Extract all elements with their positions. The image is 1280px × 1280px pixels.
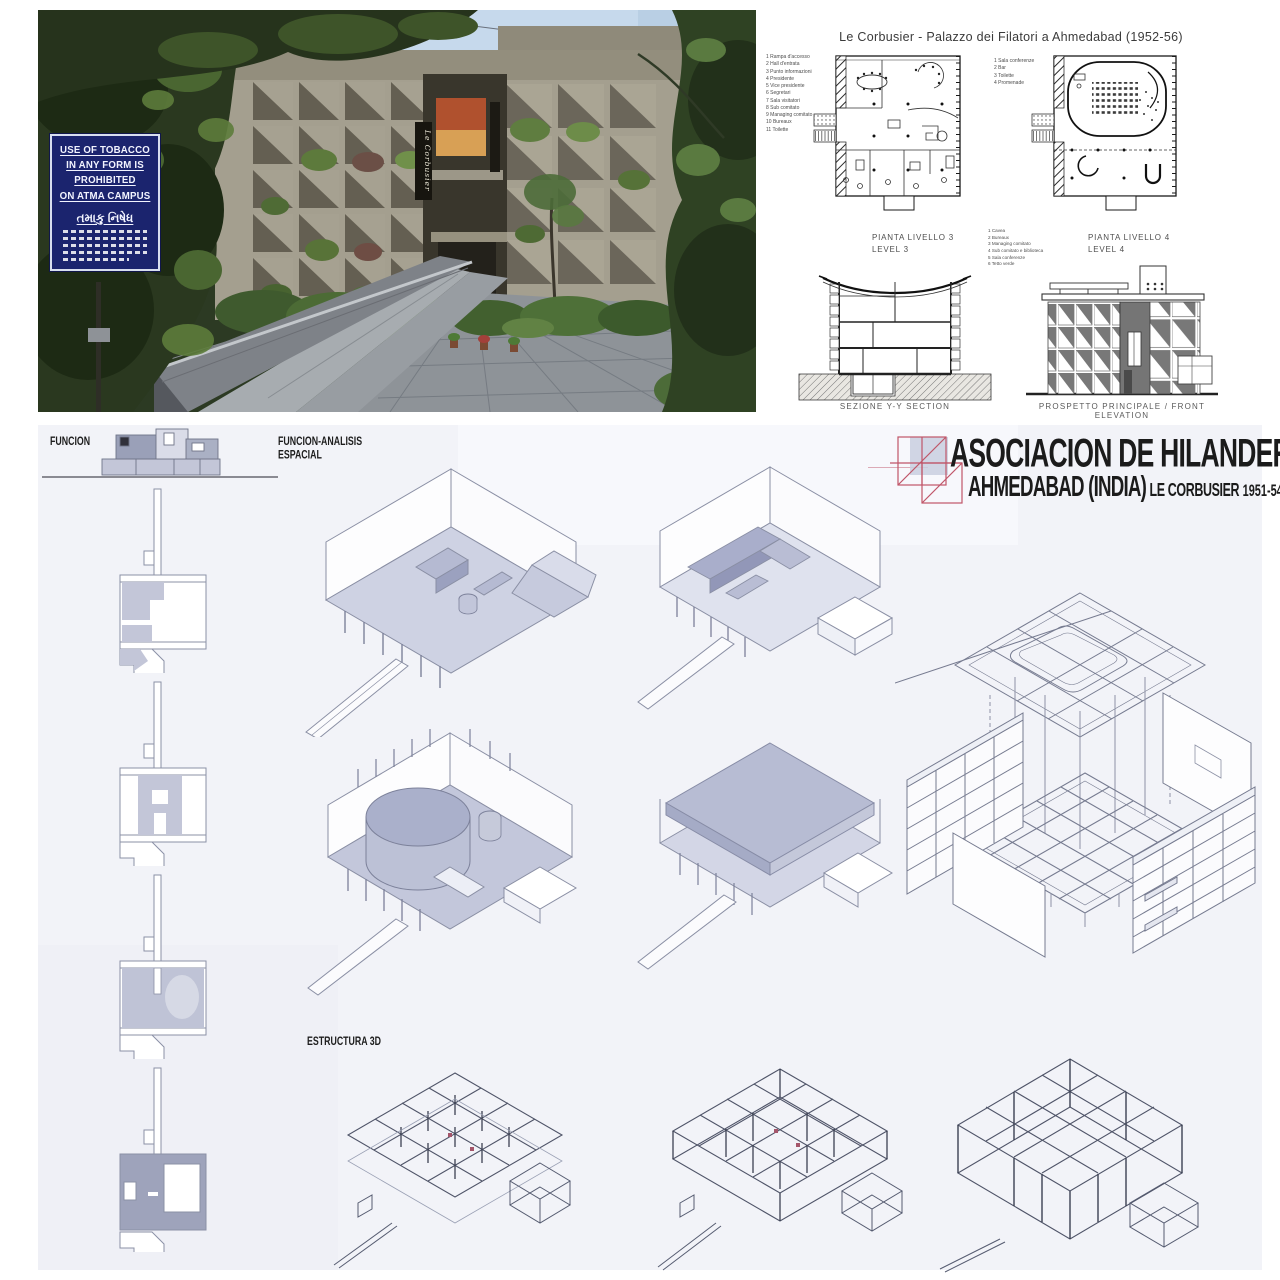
legend-item: 5 Vice presidente — [766, 83, 812, 90]
sign-small-text-row — [63, 230, 147, 233]
legend-item: 10 Bureaux — [766, 119, 812, 126]
section-caption: SEZIONE Y-Y SECTION — [820, 402, 970, 411]
sign-line: ON ATMA CAMPUS — [59, 189, 151, 204]
plan4-label: PIANTA LIVELLO 4 LEVEL 4 — [1088, 232, 1170, 256]
collage-page: USE OF TOBACCO IN ANY FORM IS PROHIBITED… — [0, 0, 1280, 1280]
sign-line: USE OF TOBACCO — [59, 143, 151, 158]
axon-estructura-1 — [330, 1055, 580, 1270]
plan-level4-drawing — [1028, 50, 1200, 222]
axon-funcion-espacial-1 — [296, 447, 616, 737]
legend-item: 8 Sub comitato — [766, 105, 812, 112]
analysis-board: FUNCION FUNCION-ANALISIS ESPACIAL ESTRUC… — [38, 425, 1262, 1270]
axon-estructura-3 — [930, 1043, 1210, 1273]
legend-item: 11 Toilette — [766, 127, 812, 134]
elevation-drawing — [1022, 258, 1222, 408]
board-title-architect: LE CORBUSIER — [1150, 480, 1240, 500]
legend-item: 1 Cavea — [988, 228, 1043, 235]
axon-funcion-espacial-2 — [630, 447, 910, 717]
board-title-line2: AHMEDABAD (INDIA) LE CORBUSIER 1951-54 — [968, 471, 1280, 504]
drawing-sheet: Le Corbusier - Palazzo dei Filatori a Ah… — [760, 10, 1262, 415]
plan-diagram-1 — [68, 485, 258, 673]
axon-estructura-2 — [650, 1055, 910, 1275]
legend-item: 2 Bureaux — [988, 235, 1043, 242]
le-corbusier-banner: Le Corbusier — [415, 122, 432, 200]
plan3-label-it: PIANTA LIVELLO 3 — [872, 232, 954, 244]
sign-small-text-row — [63, 244, 147, 247]
axon-funcion-espacial-3 — [300, 697, 600, 997]
exploded-axon — [895, 565, 1262, 985]
funcion-section-diagram — [40, 425, 280, 483]
plan-level3-drawing — [812, 50, 982, 222]
sign-line: IN ANY FORM IS — [59, 158, 151, 173]
board-title-city: AHMEDABAD (INDIA) — [968, 471, 1146, 503]
legend-item: 3 Managing comitato — [988, 241, 1043, 248]
legend-item: 6 Segretari — [766, 90, 812, 97]
plan-diagram-4 — [68, 1064, 258, 1252]
elevation-caption: PROSPETTO PRINCIPALE / FRONT ELEVATION — [1022, 402, 1222, 420]
legend-item: 9 Managing comitato — [766, 112, 812, 119]
campus-photo: USE OF TOBACCO IN ANY FORM IS PROHIBITED… — [38, 10, 756, 412]
legend-item: 3 Punto informazioni — [766, 69, 812, 76]
section-drawing — [795, 252, 995, 407]
legend-item: 2 Hall d'entrata — [766, 61, 812, 68]
board-title-years: 1951-54 — [1243, 480, 1280, 499]
sign-small-text-row — [63, 258, 129, 261]
legend-item: 1 Rampa d'accesso — [766, 54, 812, 61]
axon-funcion-espacial-4 — [630, 693, 910, 993]
legend-item: 4 Sub comitato e biblioteca — [988, 248, 1043, 255]
sign-small-text-row — [63, 237, 147, 240]
plan4-label-it: PIANTA LIVELLO 4 — [1088, 232, 1170, 244]
legend-level3: 1 Rampa d'accesso 2 Hall d'entrata 3 Pun… — [766, 54, 812, 134]
plan-diagram-3 — [68, 871, 258, 1059]
tobacco-prohibition-sign: USE OF TOBACCO IN ANY FORM IS PROHIBITED… — [50, 134, 160, 271]
sign-small-text-row — [63, 251, 147, 254]
plan-diagram-2 — [68, 678, 258, 866]
sign-line: PROHIBITED — [59, 173, 151, 188]
legend-item: 4 Presidente — [766, 76, 812, 83]
label-estructura: ESTRUCTURA 3D — [307, 1035, 381, 1048]
legend-item: 7 Sala visitatori — [766, 98, 812, 105]
sheet-title: Le Corbusier - Palazzo dei Filatori a Ah… — [760, 30, 1262, 44]
sign-gujarati-title: તમાકુ નિષેધ — [55, 211, 155, 226]
plan4-label-en: LEVEL 4 — [1088, 244, 1170, 256]
